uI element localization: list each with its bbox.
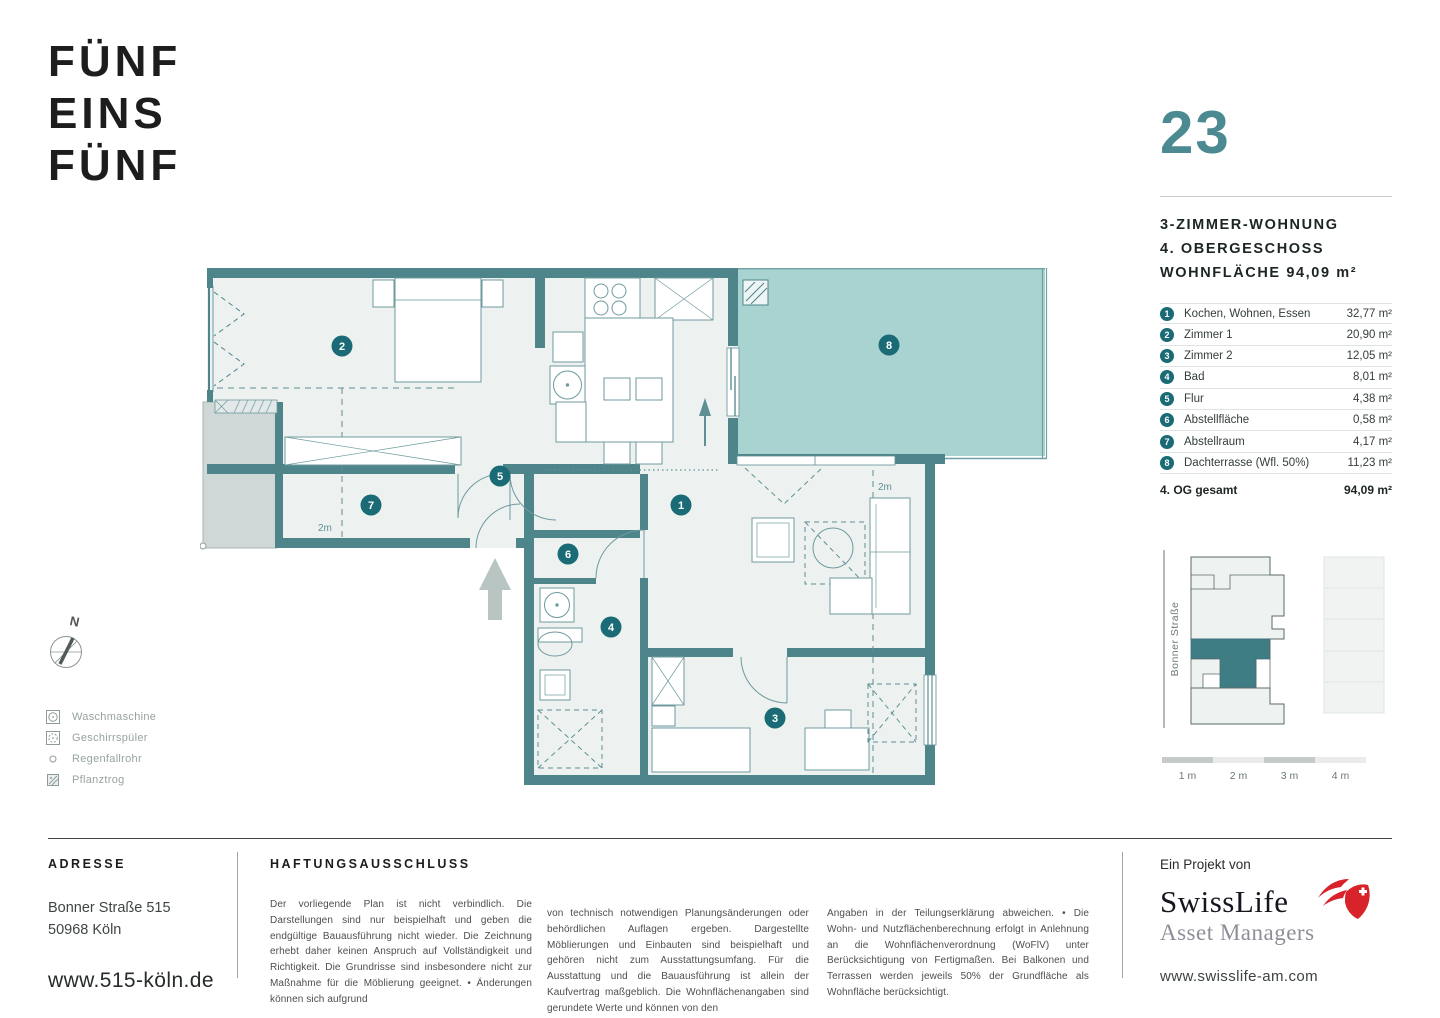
disclaimer-column-2: von technisch notwendigen Planungsänderu…: [547, 857, 809, 1017]
badge-6: 6: [558, 544, 579, 565]
disclaimer-text: Angaben in der Teilungserklärung abweich…: [827, 906, 1089, 1001]
total-area: 94,09 m²: [1344, 483, 1392, 497]
scale-label-4m: 4 m: [1315, 770, 1366, 782]
disclaimer-column-1: HAFTUNGSAUSSCHLUSS Der vorliegende Plan …: [270, 857, 532, 1008]
building-b: [1324, 557, 1384, 713]
scale-label-3m: 3 m: [1264, 770, 1315, 782]
room-badge: 6: [1160, 413, 1174, 427]
room-label: Flur: [1184, 393, 1353, 405]
planter-icon: [46, 773, 60, 787]
rain-pipe-icon: [46, 752, 60, 766]
scale-segments: [1162, 757, 1366, 763]
window-right: [924, 675, 936, 745]
badge-3: 3: [765, 708, 786, 729]
badge-8: 8: [879, 335, 900, 356]
address-line-2: 50968 Köln: [48, 919, 218, 941]
svg-text:6: 6: [565, 549, 571, 561]
table-row: 2 Zimmer 1 20,90 m²: [1160, 324, 1392, 345]
disclaimer-text: von technisch notwendigen Planungsänderu…: [547, 906, 809, 1017]
room-badge: 3: [1160, 349, 1174, 363]
footer-divider-vertical: [1122, 852, 1123, 978]
table-row: 1 Kochen, Wohnen, Essen 32,77 m²: [1160, 303, 1392, 324]
badge-7: 7: [361, 495, 382, 516]
table-row: 4 Bad 8,01 m²: [1160, 367, 1392, 388]
table-row: 5 Flur 4,38 m²: [1160, 389, 1392, 410]
legend-item-geschirrspueler: Geschirrspüler: [46, 727, 156, 748]
room-label: Bad: [1184, 371, 1353, 383]
disclaimer-text: Der vorliegende Plan ist nicht verbindli…: [270, 897, 532, 1008]
unit-headings: 3-ZIMMER-WOHNUNG 4. OBERGESCHOSS WOHNFLÄ…: [1160, 213, 1392, 285]
room-badge: 1: [1160, 307, 1174, 321]
room-badge: 8: [1160, 456, 1174, 470]
footer-divider: [48, 838, 1392, 839]
svg-text:3: 3: [772, 713, 778, 725]
compass-n-label: N: [69, 613, 81, 630]
roof-terrace: [738, 268, 1047, 459]
washing-machine-icon: [46, 710, 60, 724]
room-area: 4,17 m²: [1353, 436, 1392, 448]
disclaimer-heading: HAFTUNGSAUSSCHLUSS: [270, 857, 532, 871]
address-block: ADRESSE Bonner Straße 515 50968 Köln www…: [48, 857, 218, 993]
legend-label: Pflanztrog: [72, 774, 125, 786]
room-area: 0,58 m²: [1353, 414, 1392, 426]
unit-number: 23: [1160, 98, 1231, 167]
balcony-strip: [200, 402, 277, 549]
logo-line-1: FÜNF: [48, 36, 181, 88]
room-label: Abstellfläche: [1184, 414, 1353, 426]
badge-1: 1: [671, 495, 692, 516]
badge-4: 4: [601, 617, 622, 638]
building-a: [1191, 557, 1284, 724]
plan-legend: Waschmaschine Geschirrspüler Regenfallro…: [46, 706, 156, 790]
svg-text:2: 2: [339, 341, 345, 353]
badge-2: 2: [332, 336, 353, 357]
room-badge: 5: [1160, 392, 1174, 406]
logo: FÜNF EINS FÜNF: [48, 36, 181, 192]
svg-text:7: 7: [368, 500, 374, 512]
room-label: Kochen, Wohnen, Essen: [1184, 308, 1347, 320]
planter-icon: [743, 280, 768, 305]
swisslife-website-link[interactable]: www.swisslife-am.com: [1160, 968, 1392, 985]
table-row: 8 Dachterrasse (Wfl. 50%) 11,23 m²: [1160, 453, 1392, 474]
scale-bar: 1 m 2 m 3 m 4 m: [1162, 757, 1366, 782]
swisslife-flag-icon: [1316, 874, 1374, 926]
rain-pipe-icon: [200, 543, 206, 549]
project-website-link[interactable]: www.515-köln.de: [48, 969, 218, 993]
project-intro: Ein Projekt von: [1160, 857, 1392, 872]
room-area: 11,23 m²: [1347, 457, 1392, 469]
unit-area: WOHNFLÄCHE 94,09 m²: [1160, 261, 1392, 285]
scale-label-2m: 2 m: [1213, 770, 1264, 782]
room-area: 20,90 m²: [1347, 329, 1392, 341]
room-area: 32,77 m²: [1347, 308, 1392, 320]
total-label: 4. OG gesamt: [1160, 483, 1237, 497]
legend-item-waschmaschine: Waschmaschine: [46, 706, 156, 727]
room-badge: 7: [1160, 435, 1174, 449]
svg-text:5: 5: [497, 471, 503, 483]
legend-item-regenfallrohr: Regenfallrohr: [46, 748, 156, 769]
room-area: 12,05 m²: [1347, 350, 1392, 362]
entry-arrow: [479, 558, 511, 620]
legend-label: Geschirrspüler: [72, 732, 148, 744]
svg-text:8: 8: [886, 340, 892, 352]
logo-line-2: EINS: [48, 88, 181, 140]
svg-text:4: 4: [608, 622, 615, 634]
unit-floor: 4. OBERGESCHOSS: [1160, 237, 1392, 261]
logo-line-3: FÜNF: [48, 140, 181, 192]
room-table: 1 Kochen, Wohnen, Essen 32,77 m² 2 Zimme…: [1160, 303, 1392, 497]
site-plan: Bonner Straße: [1156, 546, 1392, 732]
unit-type: 3-ZIMMER-WOHNUNG: [1160, 213, 1392, 237]
window-sill: [215, 400, 277, 413]
footer-divider-vertical: [237, 852, 238, 978]
address-line-1: Bonner Straße 515: [48, 897, 218, 919]
room-area: 8,01 m²: [1353, 371, 1392, 383]
table-row: 7 Abstellraum 4,17 m²: [1160, 431, 1392, 452]
room-area: 4,38 m²: [1353, 393, 1392, 405]
divider: [1160, 196, 1392, 197]
legend-label: Regenfallrohr: [72, 753, 142, 765]
room-badge: 2: [1160, 328, 1174, 342]
room-label: Zimmer 1: [1184, 329, 1347, 341]
table-row: 3 Zimmer 2 12,05 m²: [1160, 346, 1392, 367]
dim-label-right: 2m: [878, 482, 892, 493]
disclaimer-column-3: Angaben in der Teilungserklärung abweich…: [827, 857, 1089, 1001]
room-label: Zimmer 2: [1184, 350, 1347, 362]
street-label: Bonner Straße: [1169, 602, 1181, 677]
svg-text:1: 1: [678, 500, 684, 512]
room-label: Dachterrasse (Wfl. 50%): [1184, 457, 1347, 469]
page: FÜNF EINS FÜNF 23 3-ZIMMER-WOHNUNG 4. OB…: [0, 0, 1440, 1018]
project-credit: Ein Projekt von SwissLife Asset Managers…: [1160, 857, 1392, 985]
room-label: Abstellraum: [1184, 436, 1353, 448]
swisslife-logo: SwissLife Asset Managers: [1160, 884, 1392, 946]
total-row: 4. OG gesamt 94,09 m²: [1160, 474, 1392, 497]
address-heading: ADRESSE: [48, 857, 218, 871]
room-badge: 4: [1160, 370, 1174, 384]
legend-item-pflanztrog: Pflanztrog: [46, 769, 156, 790]
scale-label-1m: 1 m: [1162, 770, 1213, 782]
legend-label: Waschmaschine: [72, 711, 156, 723]
dim-label-left: 2m: [318, 523, 332, 534]
compass-icon: N: [46, 612, 90, 674]
badge-5: 5: [490, 466, 511, 487]
dishwasher-icon: [46, 731, 60, 745]
floor-plan: 2m 2m: [200, 260, 1050, 790]
terrace-door: [727, 348, 739, 416]
table-row: 6 Abstellfläche 0,58 m²: [1160, 410, 1392, 431]
